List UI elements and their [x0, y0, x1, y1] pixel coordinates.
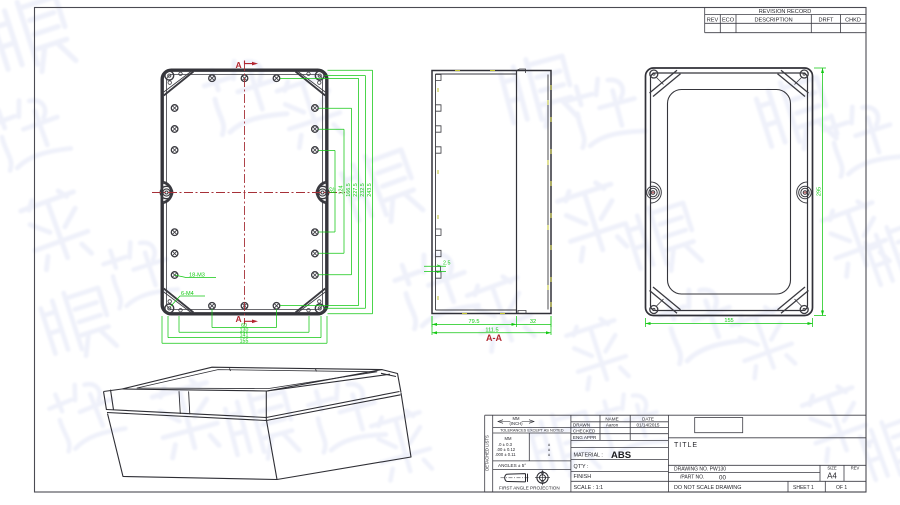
svg-text:124: 124 — [339, 186, 345, 195]
svg-text:ECO: ECO — [722, 18, 735, 24]
svg-text:SIZE: SIZE — [827, 466, 837, 471]
svg-text:ANGLES ± 5°: ANGLES ± 5° — [498, 463, 526, 468]
svg-text:.000 ± 0.11: .000 ± 0.11 — [495, 452, 516, 457]
svg-text:18-M3: 18-M3 — [189, 272, 205, 278]
svg-text:232.5: 232.5 — [360, 183, 366, 197]
svg-text:82: 82 — [330, 187, 336, 193]
svg-text:TOLERANCES EXCEPT AS NOTED: TOLERANCES EXCEPT AS NOTED — [500, 428, 564, 433]
svg-text:REVISION RECORD: REVISION RECORD — [759, 9, 812, 15]
svg-text:ABS: ABS — [611, 450, 631, 461]
svg-text:243.5: 243.5 — [367, 183, 373, 197]
svg-text:Aaron: Aaron — [606, 422, 619, 427]
svg-text:DRAWN: DRAWN — [573, 422, 590, 427]
svg-text:(INCH): (INCH) — [509, 421, 523, 426]
svg-text:DESCRIPTION: DESCRIPTION — [754, 18, 792, 24]
svg-text:MM: MM — [505, 436, 512, 441]
svg-text:MATERIAL :: MATERIAL : — [574, 452, 603, 458]
svg-text:00: 00 — [719, 474, 726, 481]
svg-text:QT'Y :: QT'Y : — [574, 464, 589, 470]
svg-text:REV: REV — [851, 466, 860, 471]
svg-text:NAME: NAME — [605, 416, 618, 421]
svg-text:32: 32 — [530, 319, 536, 325]
svg-text:SCALE : 1:1: SCALE : 1:1 — [574, 485, 604, 491]
svg-text:A4: A4 — [827, 472, 837, 481]
svg-text:295: 295 — [817, 187, 823, 196]
svg-text:DETACHED LISTS: DETACHED LISTS — [485, 435, 490, 471]
svg-text:REV: REV — [707, 18, 719, 24]
svg-text:FINISH: FINISH — [574, 474, 592, 480]
svg-text:79.5: 79.5 — [469, 319, 480, 325]
svg-text:DRFT: DRFT — [819, 18, 834, 24]
svg-text:2.5: 2.5 — [443, 261, 451, 267]
svg-text:6-M4: 6-M4 — [181, 291, 194, 297]
svg-text:A-A: A-A — [486, 333, 502, 343]
svg-text:01/14/2015: 01/14/2015 — [637, 422, 660, 427]
svg-text:DATE: DATE — [642, 416, 654, 421]
svg-text:166.5: 166.5 — [346, 183, 352, 197]
svg-text:ENG APPR: ENG APPR — [573, 435, 597, 440]
svg-text:CHECKED: CHECKED — [573, 428, 596, 433]
svg-text:SHEET 1: SHEET 1 — [793, 485, 814, 491]
svg-text:CHKD: CHKD — [845, 18, 861, 24]
svg-text:DO NOT SCALE DRAWING: DO NOT SCALE DRAWING — [674, 485, 741, 491]
svg-text:/PART NO.: /PART NO. — [680, 475, 704, 481]
svg-text:A: A — [236, 60, 242, 70]
svg-text:TITLE: TITLE — [674, 442, 698, 449]
svg-text:155: 155 — [240, 338, 249, 344]
svg-text:227.5: 227.5 — [353, 183, 359, 197]
svg-text:OF 1: OF 1 — [836, 485, 847, 491]
svg-text:DRAWING NO. PW130: DRAWING NO. PW130 — [674, 466, 726, 472]
svg-text:FIRST ANGLE PROJECTION: FIRST ANGLE PROJECTION — [499, 486, 560, 491]
svg-text:155: 155 — [724, 318, 733, 324]
